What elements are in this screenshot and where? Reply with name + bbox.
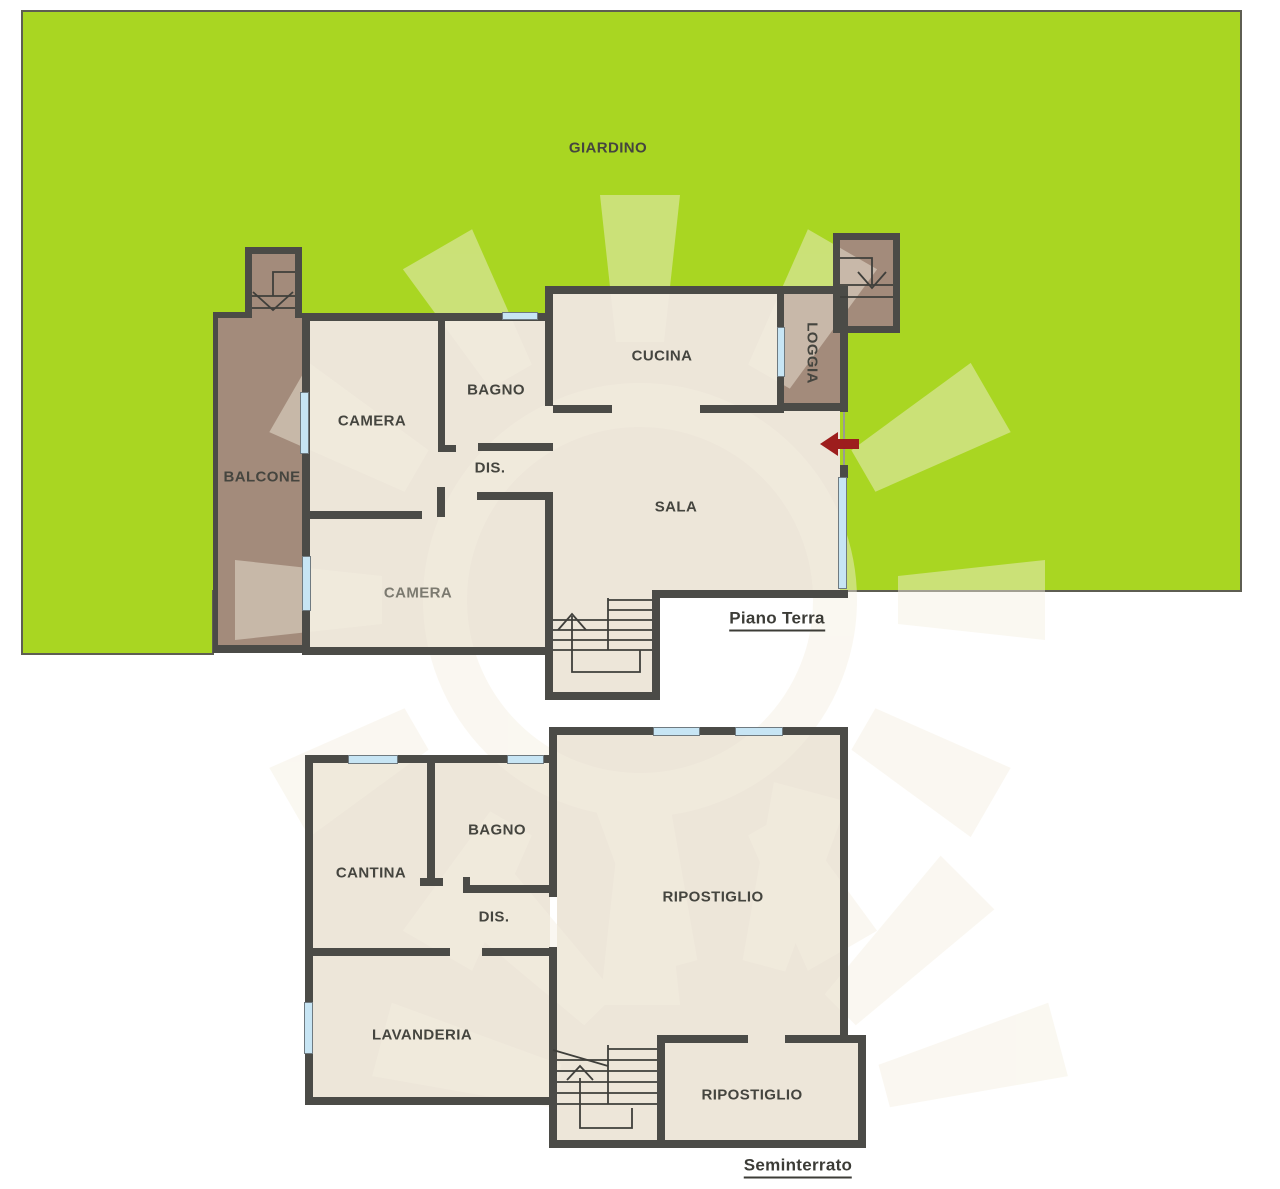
stairs-layer <box>0 0 1280 1189</box>
room-label-lavanderia: LAVANDERIA <box>372 1027 472 1044</box>
garden-label: GIARDINO <box>569 140 647 157</box>
room-label-ripostiglio-2: RIPOSTIGLIO <box>701 1087 802 1104</box>
room-label-bagno-basement: BAGNO <box>468 822 526 839</box>
room-label-sala: SALA <box>655 499 697 516</box>
stairs-external-left <box>252 272 295 310</box>
room-label-loggia: LOGGIA <box>804 322 821 384</box>
floor-title-seminterrato: Seminterrato <box>744 1156 852 1179</box>
floor-plan-page: BALCONE CAMERA BAGNO DIS. CUCINA LOGGIA … <box>0 0 1280 1189</box>
stairs-external-right <box>840 258 893 297</box>
room-label-bagno: BAGNO <box>467 382 525 399</box>
room-label-cantina: CANTINA <box>336 865 406 882</box>
room-label-camera-2: CAMERA <box>384 585 452 602</box>
room-label-dis: DIS. <box>475 460 506 477</box>
stairs-basement-internal <box>553 1045 657 1128</box>
room-label-ripostiglio-1: RIPOSTIGLIO <box>662 889 763 906</box>
stairs-ground-internal <box>553 598 652 672</box>
room-label-cucina: CUCINA <box>632 348 693 365</box>
room-label-dis-basement: DIS. <box>479 909 510 926</box>
entrance-arrow <box>820 432 859 456</box>
floor-title-piano-terra: Piano Terra <box>729 609 825 632</box>
room-label-balcone: BALCONE <box>224 469 301 486</box>
room-label-camera-1: CAMERA <box>338 413 406 430</box>
